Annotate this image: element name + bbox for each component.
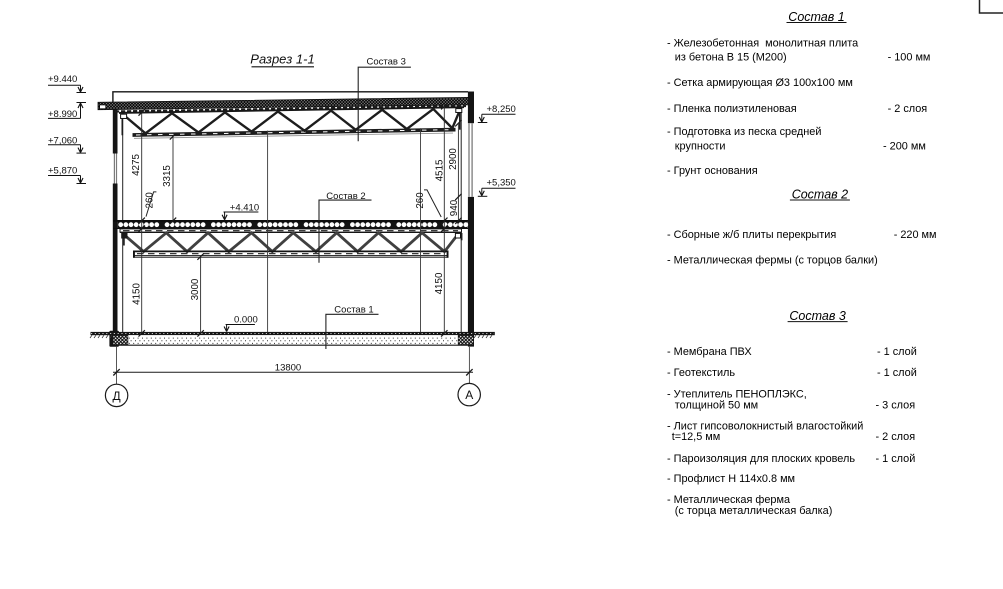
svg-text:t=12,5 мм: t=12,5 мм [672, 431, 721, 443]
svg-text:из бетона В 15 (М200): из бетона В 15 (М200) [675, 51, 787, 63]
svg-text:0.000: 0.000 [234, 315, 258, 326]
svg-text:Состав 3: Состав 3 [789, 309, 845, 323]
svg-text:- 3 слоя: - 3 слоя [876, 399, 916, 411]
svg-text:+5,870: +5,870 [48, 166, 77, 177]
svg-text:Состав 1: Состав 1 [788, 10, 844, 24]
svg-text:2900: 2900 [448, 148, 459, 170]
svg-text:- Пароизоляция для плоских кро: - Пароизоляция для плоских кровель [667, 453, 855, 465]
svg-text:+5,350: +5,350 [487, 178, 516, 189]
svg-text:толщиной 50 мм: толщиной 50 мм [675, 399, 758, 411]
svg-text:- Подготовка из песка средней: - Подготовка из песка средней [667, 126, 821, 138]
svg-text:3315: 3315 [162, 165, 173, 187]
svg-text:(с торца металлическая балка): (с торца металлическая балка) [675, 505, 833, 517]
svg-text:- Железобетонная монолитная п: - Железобетонная монолитная плита [667, 38, 859, 50]
svg-text:+8,250: +8,250 [487, 104, 516, 115]
svg-text:- Геотекстиль: - Геотекстиль [667, 367, 735, 379]
svg-text:+9.440: +9.440 [48, 74, 77, 85]
svg-text:- Металлическая фермы (с торцо: - Металлическая фермы (с торцов балки) [667, 255, 878, 267]
svg-text:Состав 2: Состав 2 [792, 187, 848, 201]
svg-text:- 100 мм: - 100 мм [888, 51, 931, 63]
svg-text:13800: 13800 [275, 362, 301, 373]
svg-text:- Грунт основания: - Грунт основания [667, 165, 758, 177]
svg-text:- 2 слоя: - 2 слоя [888, 103, 928, 115]
svg-text:260: 260 [415, 192, 426, 209]
svg-text:- 220 мм: - 220 мм [894, 229, 937, 241]
svg-text:- 1 слой: - 1 слой [876, 453, 916, 465]
svg-text:- 200 мм: - 200 мм [883, 141, 926, 153]
svg-text:А: А [465, 388, 473, 402]
svg-text:- 1 слой: - 1 слой [877, 367, 917, 379]
svg-text:940: 940 [449, 199, 460, 216]
svg-text:4150: 4150 [434, 272, 445, 294]
svg-text:4515: 4515 [435, 159, 446, 181]
svg-text:- 1 слой: - 1 слой [877, 346, 917, 358]
svg-text:- Пленка полиэтиленовая: - Пленка полиэтиленовая [667, 103, 797, 115]
svg-text:4150: 4150 [131, 283, 142, 305]
svg-text:крупности: крупности [675, 141, 726, 153]
svg-text:- Профлист Н 114х0.8 мм: - Профлист Н 114х0.8 мм [667, 473, 795, 485]
svg-text:- Сборные ж/б плиты перекрытия: - Сборные ж/б плиты перекрытия [667, 229, 836, 241]
svg-text:- Сетка армирующая Ø3 100х100: - Сетка армирующая Ø3 100х100 мм [667, 77, 853, 89]
svg-text:3000: 3000 [190, 278, 201, 300]
svg-text:Разрез 1-1: Разрез 1-1 [250, 52, 314, 67]
svg-text:4275: 4275 [131, 154, 142, 176]
svg-text:- 2 слоя: - 2 слоя [876, 431, 916, 443]
svg-text:Состав 3: Состав 3 [367, 57, 406, 68]
svg-text:Состав 1: Состав 1 [334, 304, 373, 315]
svg-text:Д: Д [113, 389, 121, 403]
svg-text:- Мембрана ПВХ: - Мембрана ПВХ [667, 346, 752, 358]
svg-text:260: 260 [144, 192, 155, 209]
